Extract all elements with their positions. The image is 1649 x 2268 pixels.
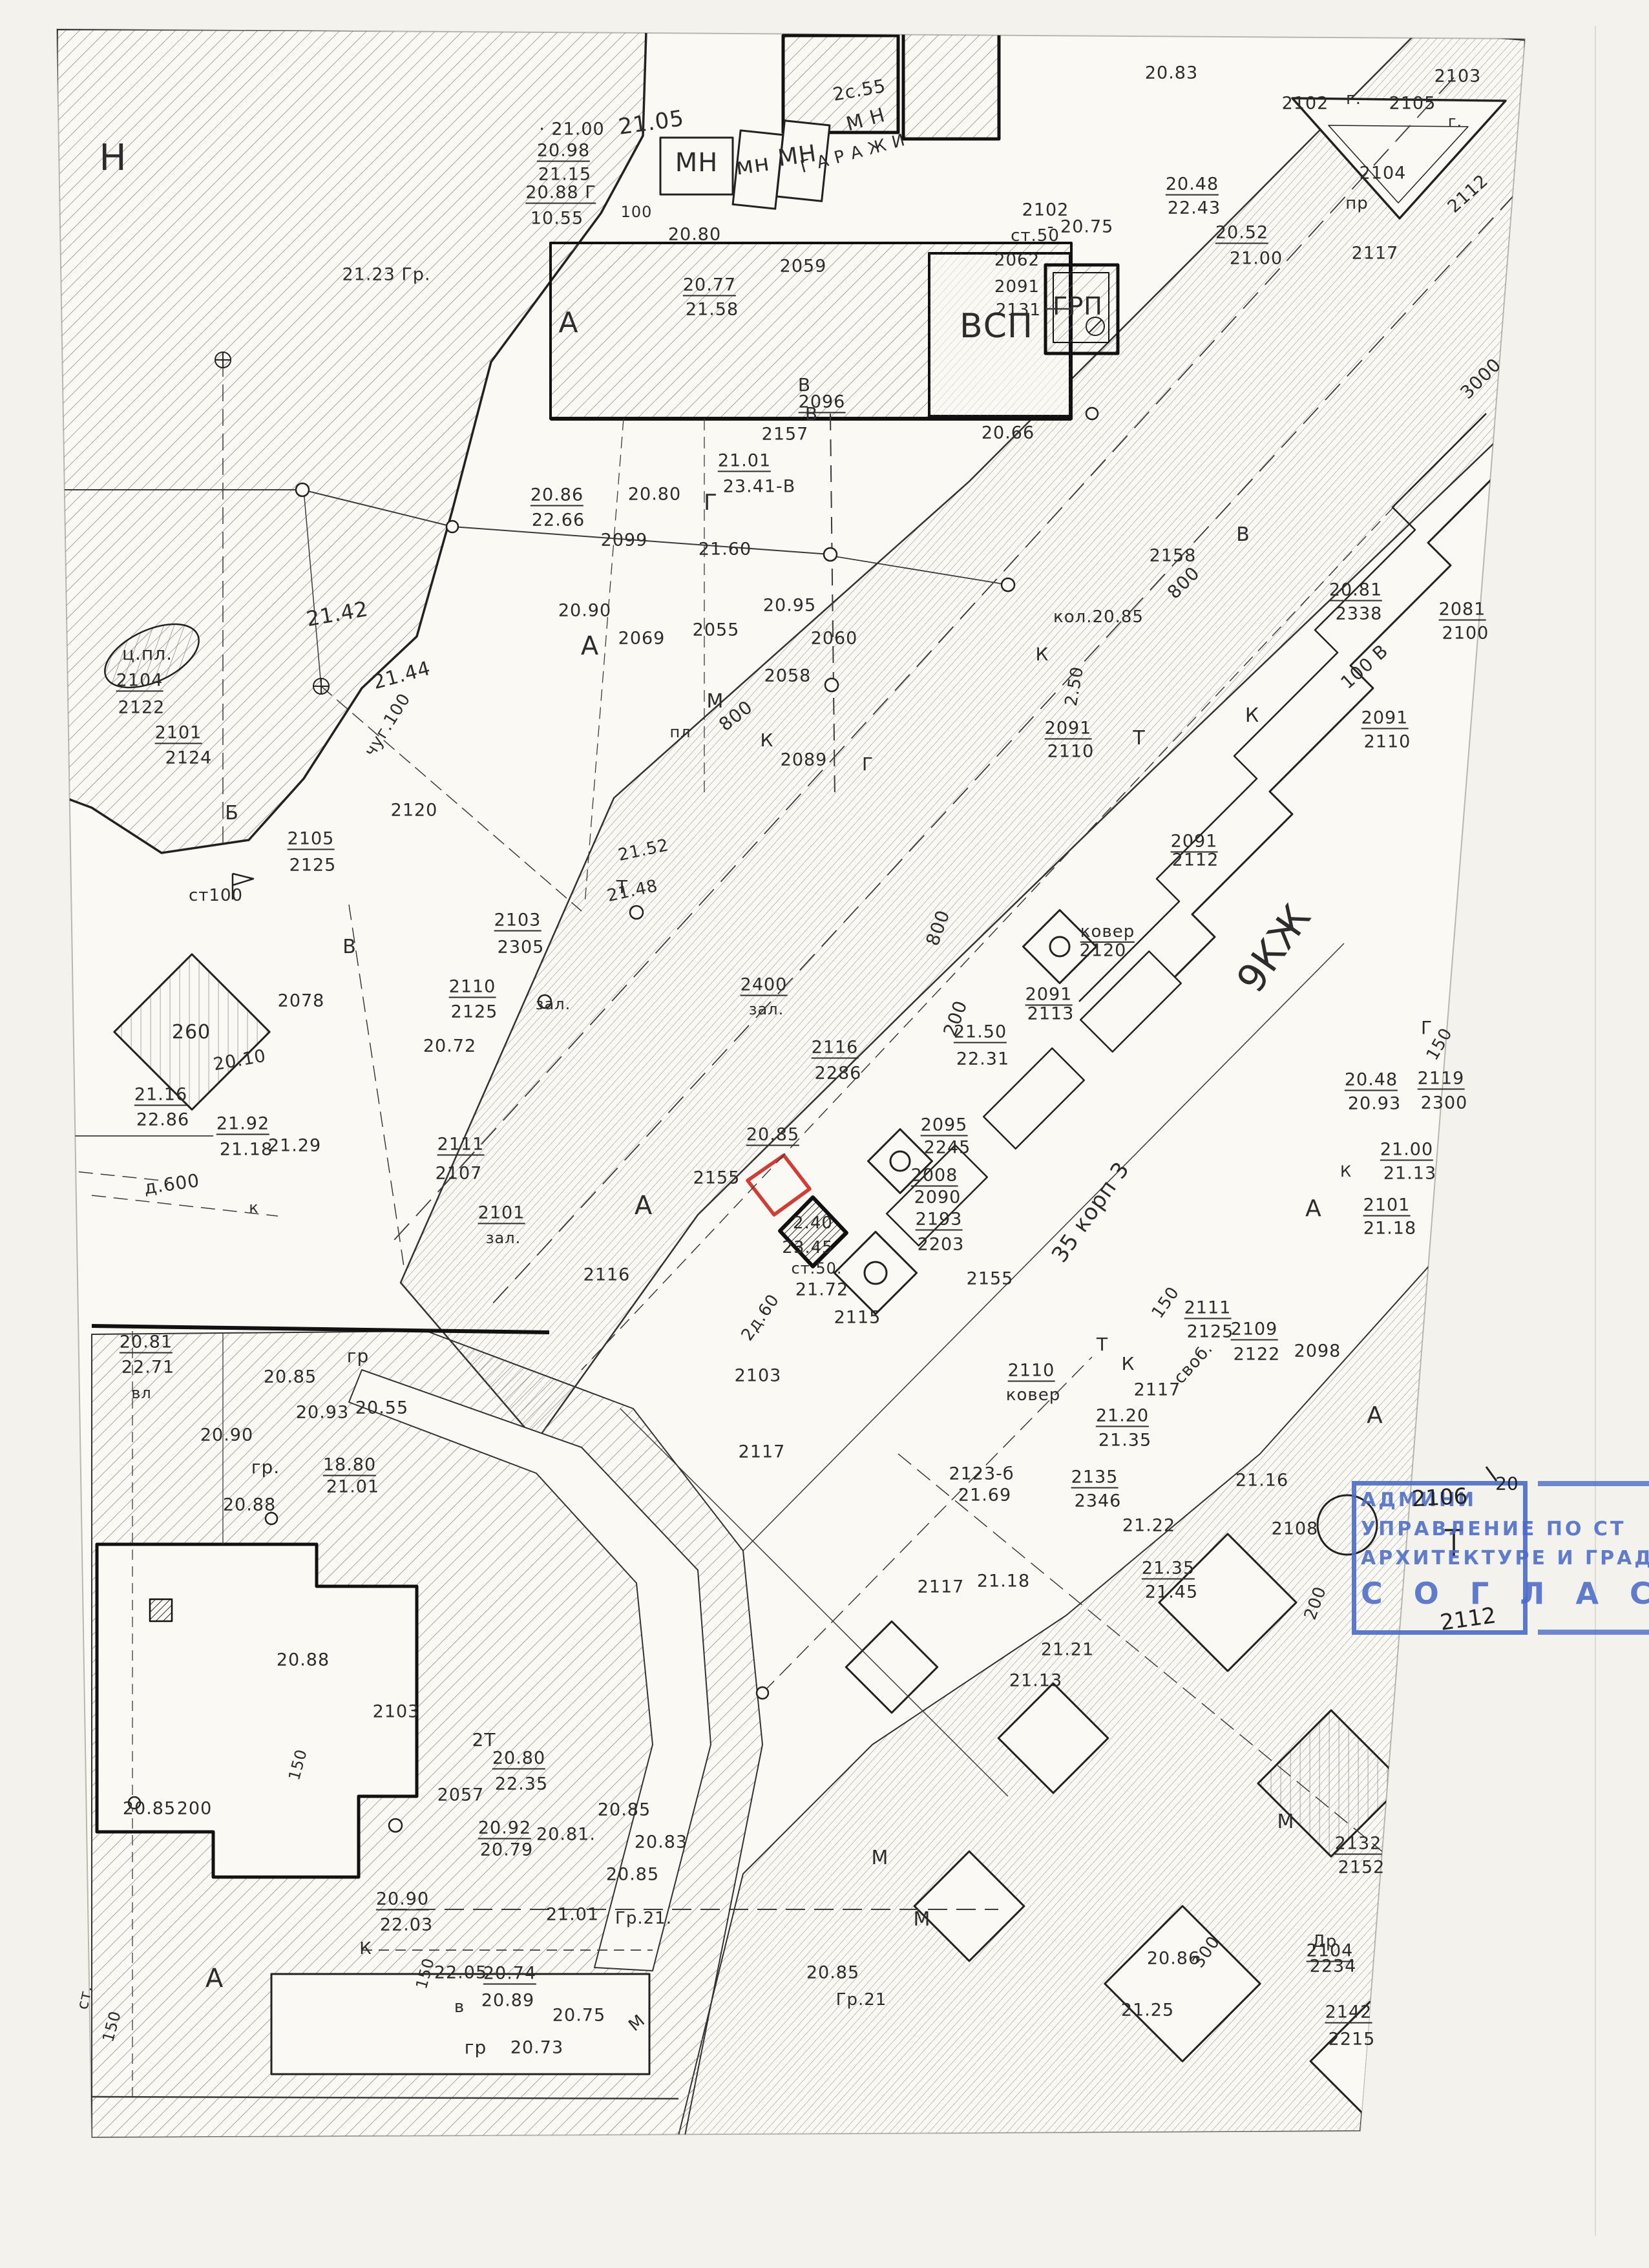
map-label: 2110 xyxy=(1047,743,1095,761)
map-label: 2155 xyxy=(693,1170,740,1187)
map-label: ковер xyxy=(1080,923,1135,943)
map-label: 800 xyxy=(1164,563,1203,602)
map-label: 2098 xyxy=(1294,1343,1341,1360)
map-label: М xyxy=(914,1910,931,1929)
map-label: 2245 xyxy=(924,1139,971,1157)
map-label: 20.80 xyxy=(668,226,721,244)
map-label: 2104 xyxy=(116,672,163,692)
map-label: 21.13 xyxy=(1009,1672,1062,1690)
map-label: 2120 xyxy=(1080,942,1127,960)
map-label: 2112 xyxy=(1172,852,1219,869)
map-label: 2102 xyxy=(1022,202,1069,219)
map-label: 21.42 xyxy=(305,598,370,629)
map-label: 20.77 xyxy=(683,277,736,297)
map-label: 2125 xyxy=(289,857,337,874)
map-label: 20.85 xyxy=(598,1801,651,1819)
map-label: 22.03 xyxy=(380,1916,433,1934)
map-label: 800 xyxy=(923,908,953,949)
pen-note-top-2: 20 xyxy=(1495,1473,1518,1495)
map-label: 2008 xyxy=(911,1167,958,1187)
scanned-map-page: Н· 21.0021.05МНмнМНМ НГ А Р А Ж И2с.5520… xyxy=(0,0,1649,2268)
map-label: 21.05 xyxy=(617,107,686,138)
map-label: 21.23 Гр. xyxy=(342,266,430,284)
map-label: 2055 xyxy=(693,622,740,639)
map-label: 2155 xyxy=(967,1270,1014,1288)
map-label: 20.80 xyxy=(492,1750,545,1770)
map-label: М xyxy=(626,2012,649,2035)
map-label: 2120 xyxy=(391,802,438,819)
map-label: 20.85 xyxy=(264,1369,317,1386)
map-label: 2101 xyxy=(155,724,202,744)
map-label: 2111 xyxy=(437,1136,485,1156)
map-label: Б xyxy=(225,804,239,823)
map-label: 2117 xyxy=(1134,1381,1181,1399)
map-label: 20.80 xyxy=(628,486,681,503)
map-label: 2108 xyxy=(1272,1520,1319,1538)
map-label: 2103 xyxy=(1434,68,1482,85)
map-label: 2058 xyxy=(764,667,812,685)
map-label: 20.85 xyxy=(806,1964,859,1982)
map-label: 150 xyxy=(414,1956,437,1990)
map-label: 21.44 xyxy=(371,659,433,693)
map-label: 2110 xyxy=(449,978,496,998)
map-label: 2122 xyxy=(1234,1346,1281,1363)
stamp-line-2: УПРАВЛЕНИЕ ПО СТ xyxy=(1361,1518,1645,1540)
map-label: 2102 xyxy=(1282,95,1329,112)
map-label: 2135 xyxy=(1071,1469,1119,1489)
map-label: М Н xyxy=(845,106,888,135)
map-label: 22.31 xyxy=(956,1051,1009,1068)
map-label: г. xyxy=(1448,114,1462,129)
map-label: 150 xyxy=(1149,1284,1182,1321)
map-label: Г xyxy=(862,755,874,773)
map-label: зал. xyxy=(749,1002,784,1017)
map-label: 21.16 xyxy=(134,1086,187,1106)
map-label: 20.52 xyxy=(1215,224,1268,244)
map-label: 2д.60 xyxy=(739,1291,782,1343)
map-label: 21.35 xyxy=(1142,1560,1195,1580)
map-label: 20.73 xyxy=(510,2039,563,2057)
map-label: К xyxy=(1340,1164,1352,1179)
map-label: гр. xyxy=(251,1458,280,1476)
map-label: 2103 xyxy=(373,1703,420,1721)
map-label: ГРП xyxy=(1053,294,1103,319)
map-label: 20.90 xyxy=(558,602,611,620)
map-label: 2057 xyxy=(437,1787,485,1804)
map-label: 200 xyxy=(177,1800,213,1818)
map-label: к xyxy=(249,1200,259,1215)
map-label: · 21.00 xyxy=(539,121,604,138)
map-label: М xyxy=(872,1849,889,1868)
map-label: Гр.21. xyxy=(615,1910,672,1927)
map-label: 2117 xyxy=(739,1444,786,1461)
map-label: Г А Р А Ж И xyxy=(799,132,907,176)
map-label: 20.88 xyxy=(223,1496,276,1514)
map-label: 150 xyxy=(286,1747,310,1781)
map-label: В xyxy=(805,405,818,423)
map-label: 2158 xyxy=(1150,547,1197,565)
map-label: 2103 xyxy=(735,1367,782,1385)
map-label: 2305 xyxy=(498,939,545,956)
map-label: 20.93 xyxy=(296,1404,349,1422)
map-label: 2110 xyxy=(1364,733,1411,751)
map-label: 20.95 xyxy=(763,597,816,614)
map-label: 21.29 xyxy=(268,1137,321,1155)
map-label: А xyxy=(205,1966,224,1991)
map-label: 23.41-В xyxy=(723,478,796,496)
map-label: ц.пл. xyxy=(122,645,173,663)
map-label: 2234 xyxy=(1310,1958,1357,1975)
map-label: Н xyxy=(99,140,127,176)
map-label: А xyxy=(558,309,578,337)
map-label: 20.83 xyxy=(635,1834,688,1851)
map-label: 21.21 xyxy=(1041,1641,1094,1659)
map-label: 20.72 xyxy=(423,1038,476,1055)
map-label: 2119 xyxy=(1418,1070,1465,1090)
map-label: 2095 xyxy=(921,1117,968,1137)
map-label: 2125 xyxy=(451,1003,498,1021)
map-label: 2346 xyxy=(1075,1493,1122,1510)
map-label: 2060 xyxy=(811,630,858,647)
map-label: 2062 xyxy=(994,252,1040,269)
map-label: К xyxy=(1122,1355,1135,1373)
map-label: 20.48 xyxy=(1345,1071,1398,1091)
map-label: 2117 xyxy=(918,1579,965,1596)
map-label: 20.89 xyxy=(481,1992,534,2010)
pen-note-top: 2106 xyxy=(1411,1484,1469,1512)
map-label: 2с.55 xyxy=(832,77,887,104)
map-label: 20.74 xyxy=(483,1965,536,1985)
map-label: 2078 xyxy=(278,992,325,1010)
map-label: 22.71 xyxy=(121,1359,174,1376)
map-label: А xyxy=(1305,1197,1322,1221)
map-label: 22.35 xyxy=(495,1776,548,1793)
map-label: 18.80 xyxy=(323,1456,376,1476)
approval-stamp: АДМИНИ УПРАВЛЕНИЕ ПО СТ АРХИТЕКТУРЕ И ГР… xyxy=(1352,1481,1649,1636)
map-label: К xyxy=(761,731,774,750)
map-label: 21.35 xyxy=(1098,1432,1151,1449)
map-label: 21.00 xyxy=(1230,250,1283,268)
map-label: Г xyxy=(1421,1019,1433,1037)
stamp-line-3: АРХИТЕКТУРЕ И ГРАДО xyxy=(1361,1547,1645,1570)
map-label: 260 xyxy=(172,1023,211,1042)
map-label: 21.22 xyxy=(1122,1517,1175,1535)
map-label: 2107 xyxy=(436,1165,483,1182)
map-label: 21.16 xyxy=(1235,1472,1288,1489)
map-label: А xyxy=(581,633,599,659)
map-label: 2091 xyxy=(994,278,1040,295)
map-label: 2193 xyxy=(916,1211,963,1231)
map-label: В xyxy=(798,376,811,394)
stamp-line-4: С О Г Л А С О xyxy=(1361,1576,1645,1611)
map-label: 20.55 xyxy=(355,1400,408,1417)
map-label: ст.50. xyxy=(792,1261,843,1276)
map-label: 2069 xyxy=(618,630,666,647)
map-label: 20.83 xyxy=(1145,65,1198,82)
map-label: 2105 xyxy=(288,830,335,850)
map-label: 23.45 xyxy=(782,1239,833,1256)
map-label: 2091 xyxy=(1025,986,1073,1006)
map-label: Т xyxy=(1133,729,1145,748)
map-label: 2286 xyxy=(815,1065,862,1082)
map-label: К xyxy=(1036,646,1049,664)
map-label: 2Т xyxy=(472,1731,496,1749)
map-label: чуг.100 xyxy=(362,691,414,759)
map-label: мн xyxy=(734,152,771,180)
map-label: 20.81 xyxy=(1329,582,1382,602)
map-label: 21.72 xyxy=(795,1281,848,1299)
map-label: 2101 xyxy=(1363,1197,1411,1217)
map-label: 2091 xyxy=(1361,709,1409,730)
map-label: 21.13 xyxy=(1383,1165,1436,1182)
map-label: 22.66 xyxy=(532,512,585,529)
map-label: 2215 xyxy=(1329,2031,1376,2048)
map-label: 2.40 xyxy=(793,1215,833,1232)
map-label: 21.15 xyxy=(538,166,591,184)
map-label: 20.90 xyxy=(200,1427,253,1444)
map-label: 2113 xyxy=(1027,1005,1075,1023)
map-label: 2157 xyxy=(762,426,809,443)
map-label: 21.01 xyxy=(546,1906,599,1924)
map-label: 21.52 xyxy=(616,837,670,864)
stamp-border-2-top xyxy=(1538,1481,1649,1486)
map-label: 2090 xyxy=(914,1189,961,1206)
map-label: 20.92 xyxy=(478,1820,531,1840)
map-label: 2203 xyxy=(918,1236,965,1254)
map-label: 10.55 xyxy=(530,210,583,227)
map-label: Гр.21 xyxy=(836,1991,887,2008)
map-label: - 20.75 xyxy=(1047,218,1114,236)
map-label: 2123-б xyxy=(949,1465,1014,1483)
map-label: 20.98 xyxy=(537,142,590,162)
map-label: 2115 xyxy=(834,1309,881,1327)
map-label: зал. xyxy=(536,996,571,1012)
map-label: 2099 xyxy=(601,532,648,549)
map-label: 21.18 xyxy=(977,1573,1030,1590)
map-label: К xyxy=(1245,706,1259,726)
map-label: 21.58 xyxy=(686,301,739,319)
map-label: 22.43 xyxy=(1168,200,1221,217)
map-label: 2125 xyxy=(1187,1323,1234,1341)
map-label: 2152 xyxy=(1338,1859,1385,1876)
map-label: 2142 xyxy=(1325,2004,1372,2024)
map-label: гр xyxy=(465,2039,487,2057)
map-label: 21.20 xyxy=(1096,1407,1149,1427)
map-label: кол.20.85 xyxy=(1053,609,1144,625)
map-label: г. xyxy=(1346,90,1361,107)
map-label: 100 В xyxy=(1338,642,1391,693)
map-label: 21.45 xyxy=(1145,1584,1198,1601)
map-label: 2103 xyxy=(494,912,541,932)
map-label: М xyxy=(707,692,724,711)
map-label: 21.18 xyxy=(220,1141,273,1159)
map-label: 2111 xyxy=(1184,1299,1232,1319)
map-label: 2400 xyxy=(740,976,788,996)
map-label: 2104 xyxy=(1360,165,1407,182)
map-label: 20.85 xyxy=(746,1126,799,1146)
map-label: 2091 xyxy=(1045,720,1092,740)
map-label: ст100 xyxy=(189,887,243,904)
map-label: МН xyxy=(675,150,719,176)
map-label: 35 корп 3 xyxy=(1048,1158,1133,1266)
map-label: Г xyxy=(704,492,718,514)
map-label: пр xyxy=(1345,195,1369,212)
map-label: 21.18 xyxy=(1363,1220,1416,1237)
map-label: д.600 xyxy=(143,1171,201,1197)
map-label: 3000 xyxy=(1457,355,1504,402)
map-label: 22.86 xyxy=(136,1111,189,1129)
map-label: 2.50 xyxy=(1063,665,1086,707)
map-label: 2112 xyxy=(1445,172,1491,216)
map-label: в xyxy=(454,1999,465,2015)
map-label: 21.01 xyxy=(326,1478,379,1496)
map-label: 2117 xyxy=(1352,245,1399,262)
map-label: 200 xyxy=(1302,1584,1329,1622)
map-label: 2109 xyxy=(1231,1321,1278,1341)
map-label: 2300 xyxy=(1421,1095,1468,1112)
map-label: 20.75 xyxy=(552,2007,605,2024)
map-label: А xyxy=(1367,1404,1383,1427)
map-label: зал. xyxy=(486,1230,521,1246)
map-label: Т xyxy=(1097,1336,1108,1354)
map-label: 2101 xyxy=(478,1204,525,1224)
map-label: ВСП xyxy=(960,310,1033,343)
map-label: 20.81. xyxy=(536,1826,596,1843)
map-label: 20.86 xyxy=(530,487,583,507)
map-label: 21.01 xyxy=(718,452,771,472)
map-label: 20.88 xyxy=(277,1652,330,1669)
map-label: 9КЖ xyxy=(1231,898,1318,999)
map-label: 20.85 xyxy=(606,1866,659,1884)
map-label: 20.10 xyxy=(212,1047,268,1074)
map-label: М xyxy=(1277,1812,1295,1832)
map-label: 2100 xyxy=(1442,625,1489,642)
map-label: А xyxy=(635,1193,653,1219)
map-label: 21.60 xyxy=(698,541,751,558)
map-label: 2132 xyxy=(1335,1835,1382,1855)
map-label: К xyxy=(359,1940,372,1957)
map-label: 2081 xyxy=(1439,601,1486,621)
map-label: В xyxy=(1236,525,1250,545)
map-label: ст. xyxy=(74,1984,94,2011)
map-label: 20.88 Г xyxy=(525,184,596,204)
map-label: 2116 xyxy=(812,1039,859,1059)
map-label: 20.66 xyxy=(982,425,1035,442)
map-label: вл xyxy=(131,1385,151,1401)
map-label: 20.93 xyxy=(1348,1095,1401,1113)
map-label: В xyxy=(342,938,357,957)
map-label: 22.05 xyxy=(434,1964,487,1982)
map-label: Т xyxy=(616,878,628,896)
map-label: ковер xyxy=(1006,1387,1060,1403)
map-label: 2110 xyxy=(1008,1362,1055,1382)
map-label: гр xyxy=(347,1347,369,1365)
map-label: 2124 xyxy=(165,750,213,767)
map-label: 20.90 xyxy=(376,1891,429,1911)
map-label: 2338 xyxy=(1336,605,1383,623)
map-labels-layer: Н· 21.0021.05МНмнМНМ НГ А Р А Ж И2с.5520… xyxy=(0,0,1649,2268)
map-label: 2105 xyxy=(1389,95,1436,112)
map-label: 2116 xyxy=(583,1266,631,1284)
map-label: 21.48 xyxy=(605,877,659,905)
map-label: 20.85 xyxy=(123,1800,176,1818)
stamp-border-2-bottom xyxy=(1538,1630,1649,1635)
map-label: пл xyxy=(669,724,691,740)
map-label: 21.92 xyxy=(216,1115,269,1135)
map-label: 2122 xyxy=(118,699,165,717)
map-label: 21.00 xyxy=(1380,1141,1433,1161)
map-label: 20.48 xyxy=(1166,176,1219,196)
map-label: 2089 xyxy=(781,751,828,769)
map-label: 21.25 xyxy=(1121,2002,1174,2019)
map-label: 20.81 xyxy=(120,1334,173,1354)
map-label: 21.69 xyxy=(958,1487,1011,1504)
map-label: 2059 xyxy=(780,258,827,275)
map-label: 100 xyxy=(621,204,653,220)
map-label: 150 xyxy=(100,2009,123,2043)
map-label: 20.79 xyxy=(480,1842,533,1859)
